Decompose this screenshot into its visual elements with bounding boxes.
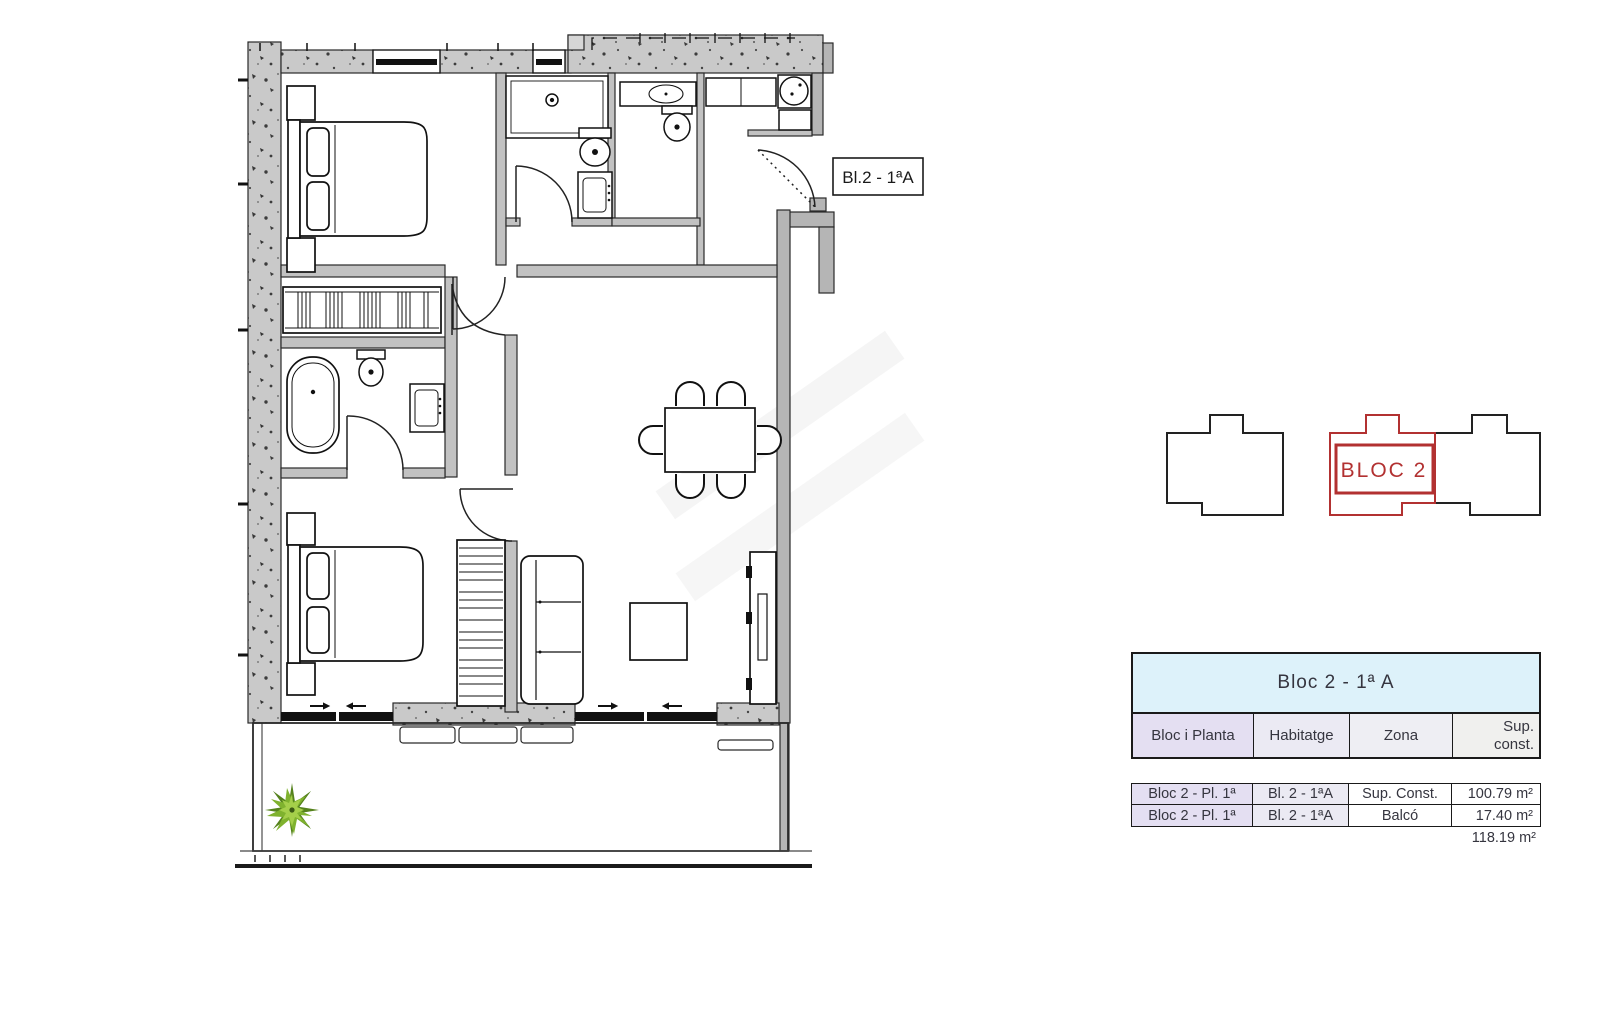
bedroom1-door: [453, 277, 505, 329]
unit-label: Bl.2 - 1ªA: [833, 158, 923, 195]
col-header-zona: Zona: [1350, 714, 1453, 757]
bathroom1-fixtures: [506, 76, 612, 218]
wardrobe: [283, 287, 441, 333]
cell-bloc-planta: Bloc 2 - Pl. 1ª: [1132, 784, 1253, 804]
sofa: [521, 556, 583, 704]
bathroom2-fixtures: [287, 350, 444, 453]
bathroom2-door: [347, 416, 403, 470]
block-locator: BLOC 2: [1167, 415, 1540, 515]
double-bed: [288, 545, 423, 663]
cell-sup: 17.40 m²: [1452, 805, 1538, 826]
entrance-door: [758, 150, 815, 207]
bedroom1-furniture: [287, 86, 427, 272]
chair: [717, 382, 745, 406]
wc-fixtures: [620, 82, 696, 141]
col-header-habitatge: Habitatge: [1254, 714, 1350, 757]
plant-icon: [265, 783, 319, 837]
toilet: [579, 128, 611, 166]
table-header-row: Bloc i Planta Habitatge Zona Sup. const.: [1131, 714, 1541, 759]
table-row: Bloc 2 - Pl. 1ª Bl. 2 - 1ªA Balcó 17.40 …: [1131, 805, 1541, 827]
table-row: Bloc 2 - Pl. 1ª Bl. 2 - 1ªA Sup. Const. …: [1131, 783, 1541, 805]
window-bottom-1: [281, 704, 393, 721]
total-area: 118.19 m²: [1131, 827, 1541, 846]
floorplan-drawing: Bl.2 - 1ªA BLOC 2: [0, 0, 1600, 1015]
coffee-table: [630, 603, 687, 660]
nightstand: [287, 238, 315, 272]
bloc2-label: BLOC 2: [1341, 459, 1428, 482]
kitchen-laundry: [706, 75, 811, 130]
cell-bloc-planta: Bloc 2 - Pl. 1ª: [1132, 805, 1253, 826]
dining-table: [665, 408, 755, 472]
cell-habitatge: Bl. 2 - 1ªA: [1253, 784, 1349, 804]
col-header-sup-const: Sup. const.: [1453, 714, 1539, 757]
block-outline-right: [1435, 415, 1540, 515]
chair: [717, 474, 745, 498]
cell-zona: Balcó: [1349, 805, 1452, 826]
shelving-unit: [457, 540, 505, 706]
nightstand: [287, 86, 315, 120]
bedroom2-door: [460, 489, 513, 541]
unit-label-text: Bl.2 - 1ªA: [842, 168, 914, 187]
cell-zona: Sup. Const.: [1349, 784, 1452, 804]
chair: [757, 426, 781, 454]
bedroom2-furniture: [287, 513, 423, 695]
floorplan-page: Bl.2 - 1ªA BLOC 2 Bloc 2 - 1ª A Bloc i P…: [0, 0, 1600, 1015]
cell-habitatge: Bl. 2 - 1ªA: [1253, 805, 1349, 826]
toilet: [662, 106, 692, 141]
tv-unit: [746, 552, 776, 704]
bathroom1-door: [516, 166, 572, 222]
sink-vanity: [578, 172, 612, 218]
laundry-counter: [779, 110, 811, 130]
balcony: [253, 723, 788, 851]
sink-vanity: [410, 384, 444, 432]
washbasin-counter: [620, 82, 696, 106]
window-top-1: [373, 50, 440, 73]
cell-sup: 100.79 m²: [1452, 784, 1538, 804]
col-header-bloc-i-planta: Bloc i Planta: [1133, 714, 1254, 757]
nightstand: [287, 513, 315, 545]
nightstand: [287, 663, 315, 695]
toilet: [357, 350, 385, 386]
chair: [676, 382, 704, 406]
area-summary-table: Bloc 2 - 1ª A Bloc i Planta Habitatge Zo…: [1131, 652, 1541, 846]
washing-machine: [778, 75, 811, 130]
hall-door: [452, 284, 505, 335]
block-outline-left: [1167, 415, 1283, 515]
window-top-2: [533, 50, 565, 73]
bathtub: [287, 357, 339, 453]
table-title: Bloc 2 - 1ª A: [1131, 652, 1541, 714]
window-bottom-2: [575, 704, 717, 721]
chair: [639, 426, 663, 454]
chair: [676, 474, 704, 498]
double-bed: [288, 120, 427, 238]
site-boundary: [235, 851, 812, 868]
